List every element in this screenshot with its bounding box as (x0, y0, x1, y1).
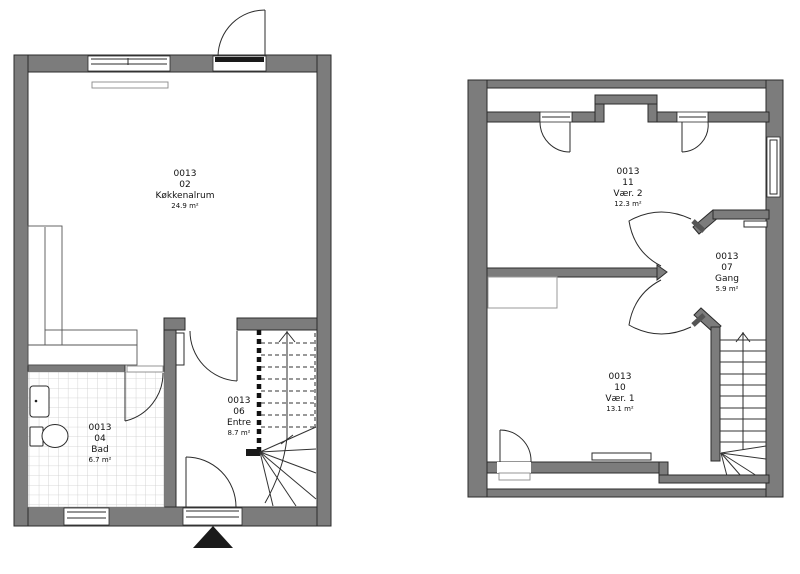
room-name: Entre (227, 418, 251, 429)
staircase-ground (246, 330, 316, 506)
room-name: Vær. 1 (605, 394, 634, 405)
room-code: 0013 (156, 169, 215, 180)
room-area: 12.3 m² (613, 200, 642, 209)
room-label-vaer2: 0013 11 Vær. 2 12.3 m² (613, 167, 642, 209)
room-code: 0013 (715, 252, 739, 263)
roof-window-right (677, 112, 708, 152)
vaer1-door (497, 430, 531, 480)
middle-wall (487, 265, 667, 280)
knee-wall (487, 95, 769, 122)
entrance-arrow-icon (193, 526, 233, 548)
room-number: 04 (89, 434, 112, 445)
gang-walls (693, 210, 769, 461)
room-name: Bad (89, 445, 112, 456)
bathroom-sink (30, 386, 49, 417)
room-name: Vær. 2 (613, 189, 642, 200)
kitchen-counter (28, 226, 137, 365)
room-number: 11 (613, 178, 642, 189)
top-entry-door (213, 10, 266, 71)
room-area: 5.9 m² (715, 285, 739, 294)
room-code: 0013 (227, 396, 251, 407)
ground-floor-plan (14, 10, 331, 548)
room-area: 6.7 m² (89, 456, 112, 465)
toilet (30, 425, 68, 448)
room-area: 8.7 m² (227, 429, 251, 438)
closet (488, 277, 557, 308)
room-label-gang: 0013 07 Gang 5.9 m² (715, 252, 739, 294)
roof-window-left (540, 112, 572, 152)
room-number: 06 (227, 407, 251, 418)
floor-plan-sheet: 0013 02 Køkkenalrum 24.9 m² 0013 04 Bad … (0, 0, 800, 574)
room-code: 0013 (605, 372, 634, 383)
room-name: Gang (715, 274, 739, 285)
gable-window (767, 137, 780, 197)
room-area: 24.9 m² (156, 202, 215, 211)
room-code: 0013 (89, 423, 112, 434)
room-number: 07 (715, 263, 739, 274)
room-label-koekkenalrum: 0013 02 Køkkenalrum 24.9 m² (156, 169, 215, 211)
room-name: Køkkenalrum (156, 191, 215, 202)
room-number: 10 (605, 383, 634, 394)
room-label-vaer1: 0013 10 Vær. 1 13.1 m² (605, 372, 634, 414)
bathroom-window (64, 508, 109, 525)
room-number: 02 (156, 180, 215, 191)
room-label-entre: 0013 06 Entre 8.7 m² (227, 396, 251, 438)
entre-door (190, 331, 237, 381)
room-code: 0013 (613, 167, 642, 178)
staircase-upper (720, 332, 766, 476)
room-label-bad: 0013 04 Bad 6.7 m² (89, 423, 112, 465)
entre-radiator (176, 333, 184, 365)
room-area: 13.1 m² (605, 405, 634, 414)
gang-radiator (744, 221, 767, 227)
vaer1-radiator (592, 453, 651, 460)
main-entrance-door (183, 457, 242, 525)
floor-plan-drawing (0, 0, 800, 574)
